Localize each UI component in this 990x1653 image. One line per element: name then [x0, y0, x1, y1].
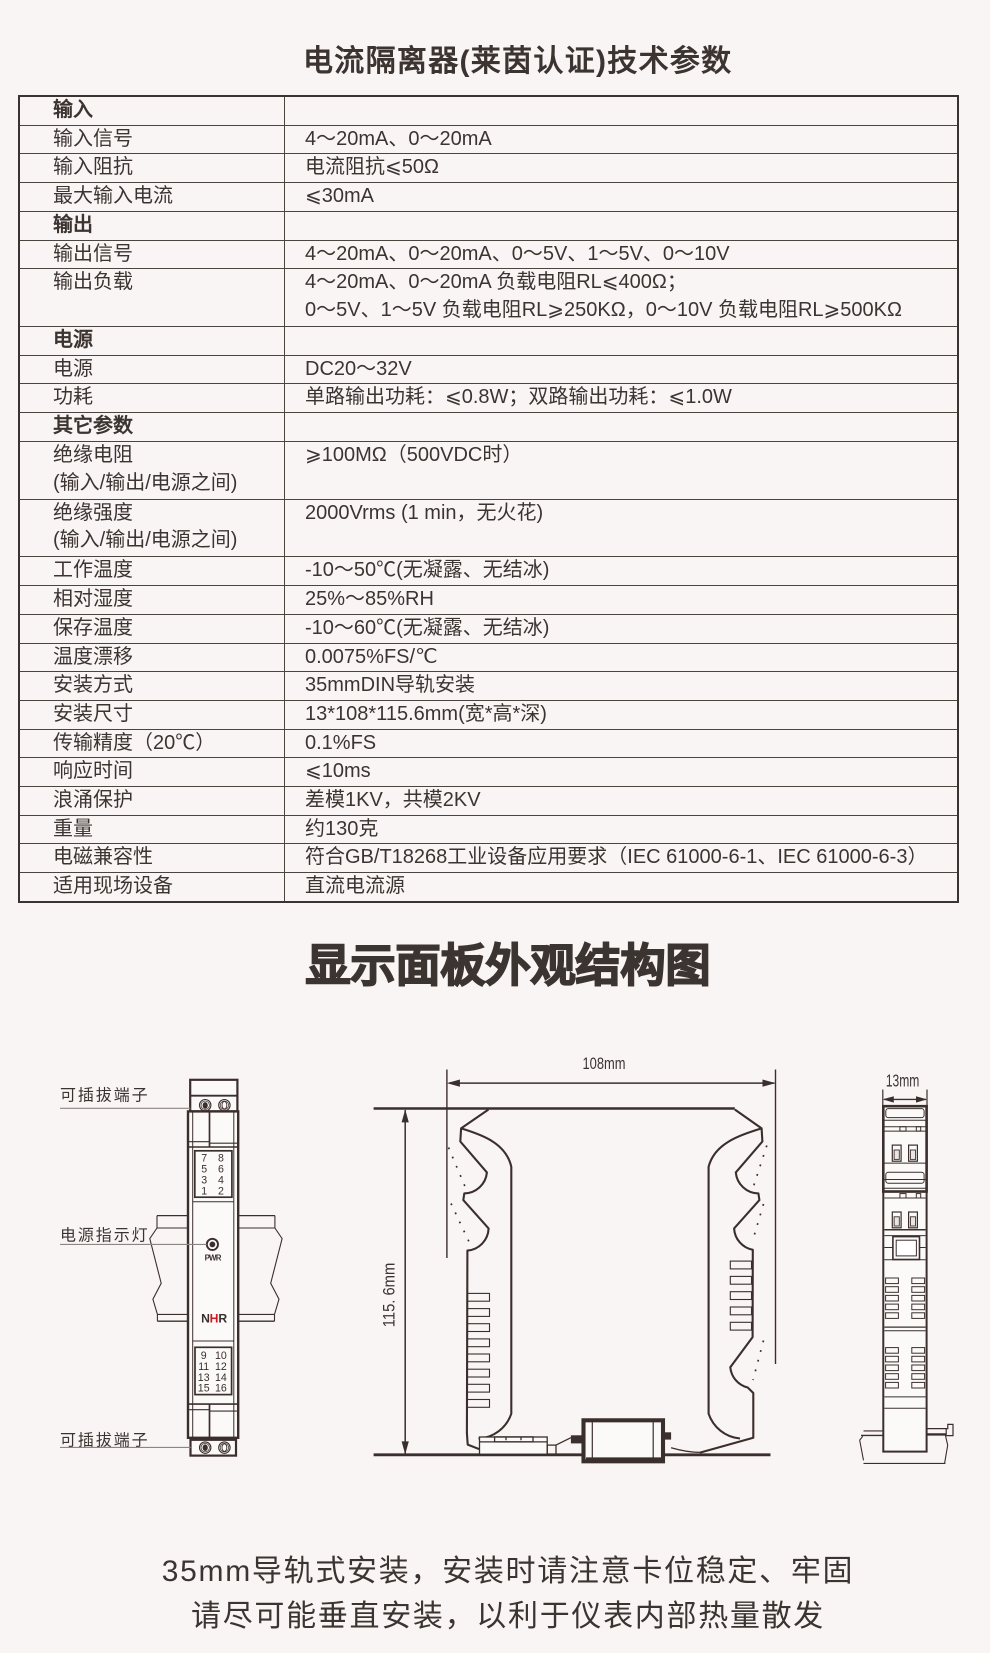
svg-text:12: 12: [215, 1361, 227, 1373]
svg-text:H: H: [210, 1312, 219, 1326]
svg-text:1: 1: [201, 1186, 207, 1198]
svg-text:R: R: [218, 1312, 227, 1326]
svg-text:可插拔端子: 可插拔端子: [60, 1432, 150, 1450]
svg-text:7: 7: [201, 1153, 207, 1165]
svg-text:13mm: 13mm: [886, 1071, 920, 1091]
svg-text:115. 6mm: 115. 6mm: [380, 1263, 399, 1328]
svg-text:N: N: [201, 1312, 210, 1326]
svg-text:11: 11: [198, 1361, 209, 1373]
svg-text:15: 15: [198, 1383, 210, 1395]
svg-text:16: 16: [215, 1383, 227, 1395]
svg-text:电源指示灯: 电源指示灯: [60, 1227, 150, 1245]
svg-text:可插拔端子: 可插拔端子: [60, 1087, 150, 1105]
svg-text:2: 2: [218, 1186, 224, 1198]
svg-text:PWR: PWR: [205, 1253, 222, 1262]
svg-text:108mm: 108mm: [583, 1054, 626, 1073]
svg-text:8: 8: [218, 1153, 224, 1165]
